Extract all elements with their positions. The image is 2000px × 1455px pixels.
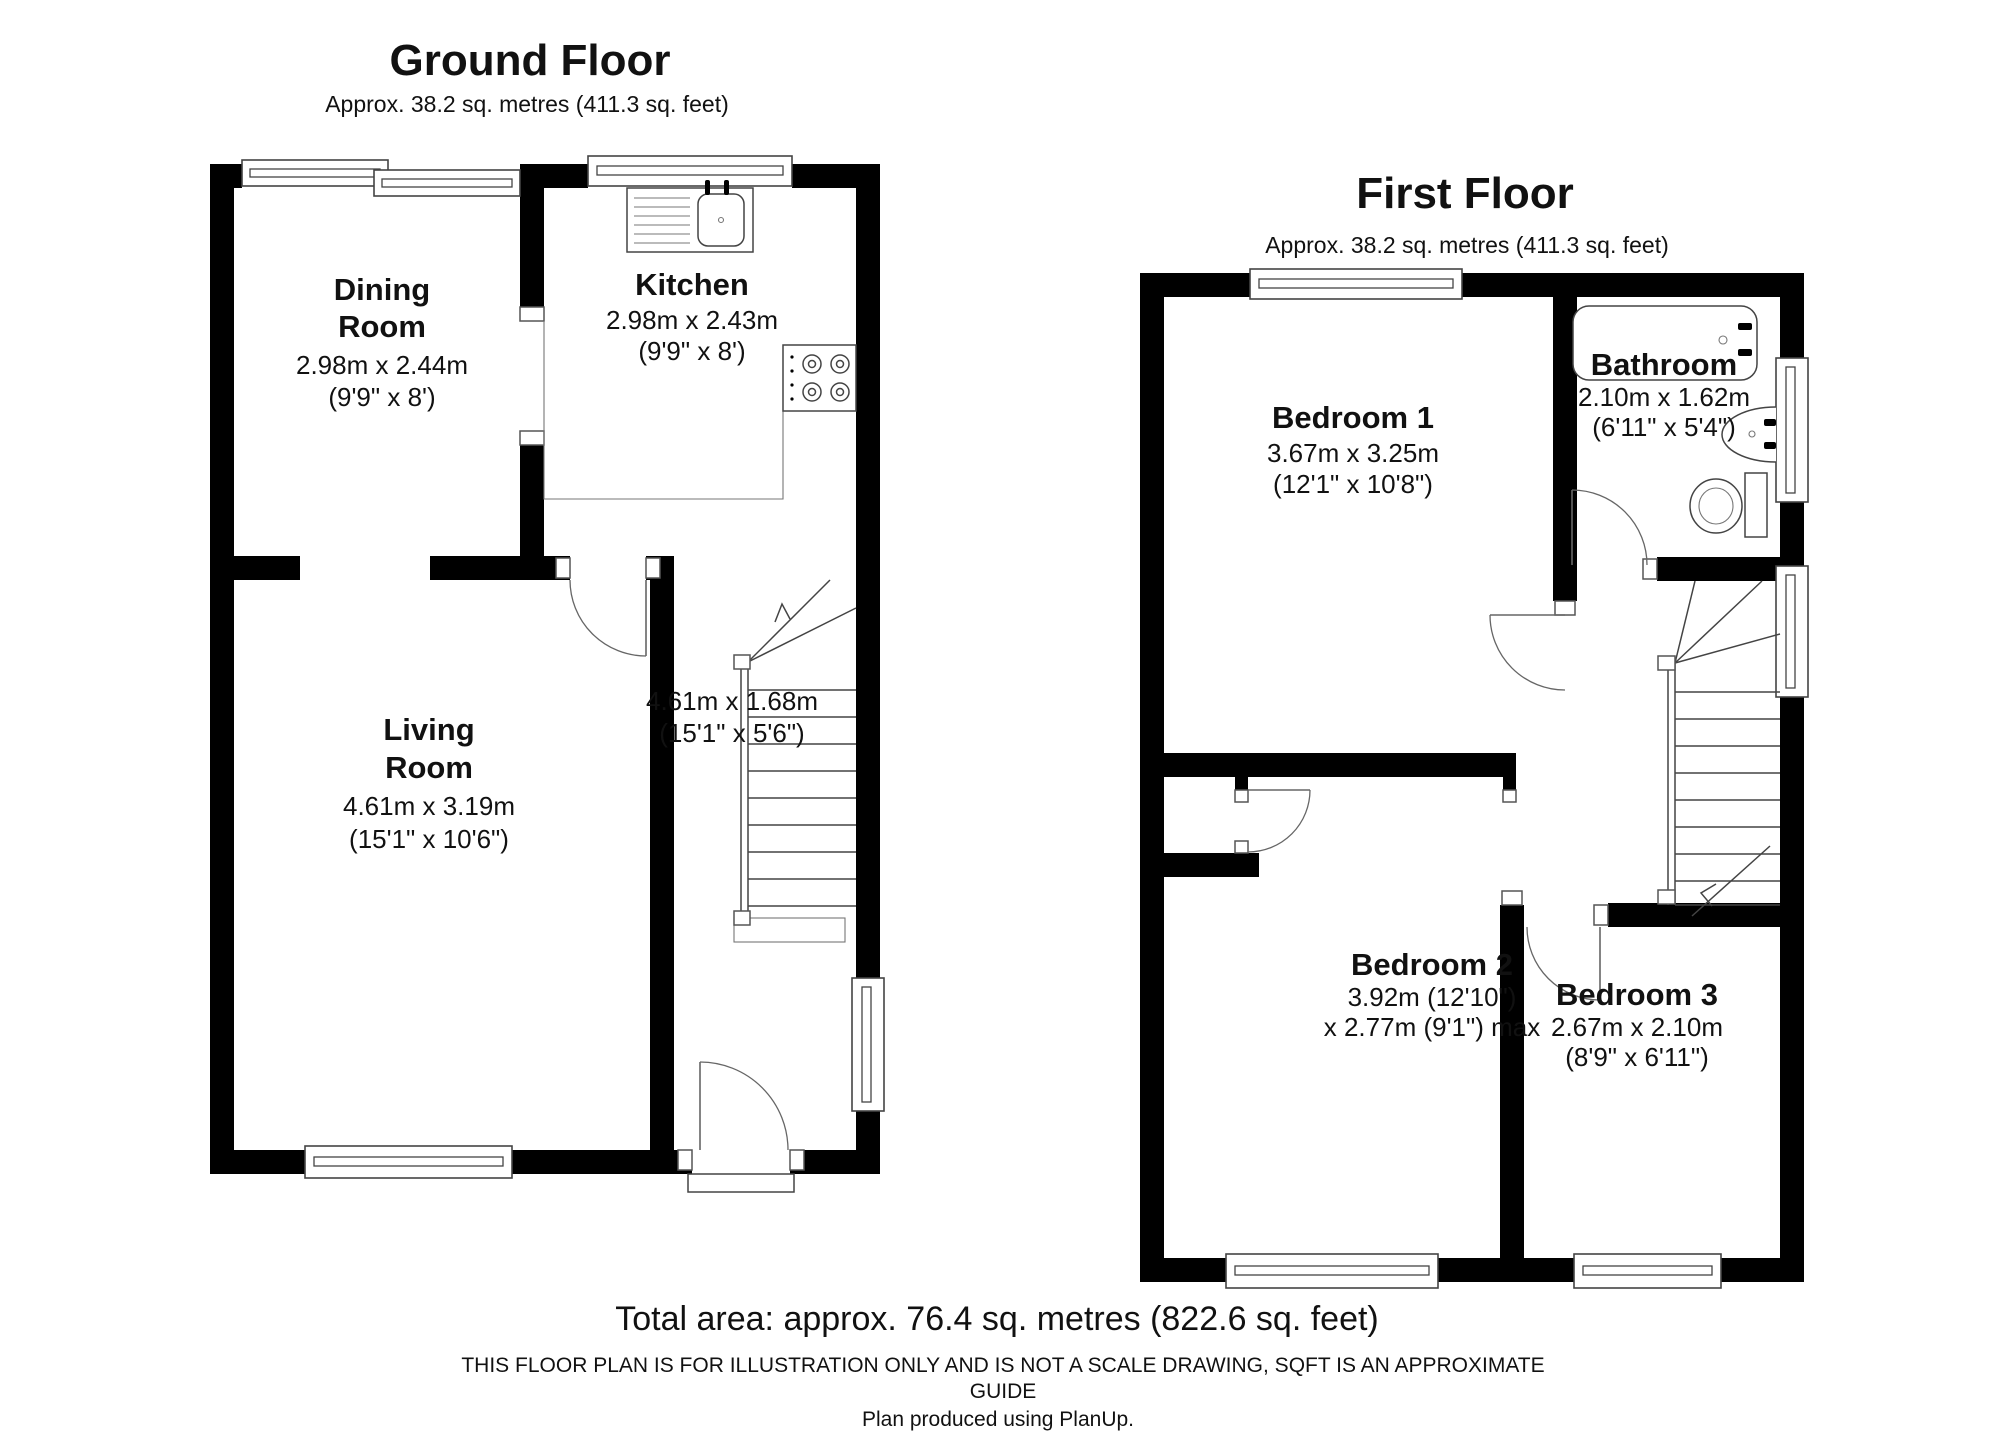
disclaimer-line1: THIS FLOOR PLAN IS FOR ILLUSTRATION ONLY… [461,1354,1544,1377]
svg-text:2.98m x 2.44m: 2.98m x 2.44m [296,350,468,380]
bedroom1-door [1490,615,1565,690]
svg-text:3.67m x 3.25m: 3.67m x 3.25m [1267,438,1439,468]
first-door-jambs [1235,559,1657,925]
planup-credit-text: Plan produced using PlanUp. [862,1408,1134,1431]
ground-floor-plan: Ground Floor Approx. 38.2 sq. metres (41… [210,36,884,1192]
svg-text:(9'9" x 8'): (9'9" x 8') [638,336,745,366]
bedroom3-window [1574,1254,1721,1288]
svg-text:(15'1" x 5'6"): (15'1" x 5'6") [659,718,804,748]
bedroom3-label: Bedroom 3 2.67m x 2.10m (8'9" x 6'11") [1551,977,1723,1072]
bathroom-window [1776,358,1808,502]
svg-text:(8'9" x 6'11"): (8'9" x 6'11") [1565,1042,1709,1072]
bathroom-label: Bathroom 2.10m x 1.62m (6'11" x 5'4") [1578,347,1750,442]
floorplan-drawing: Ground Floor Approx. 38.2 sq. metres (41… [0,0,2000,1455]
floorplan-page: Ground Floor Approx. 38.2 sq. metres (41… [0,0,2000,1455]
svg-text:(12'1" x 10'8"): (12'1" x 10'8") [1273,469,1433,499]
first-floor-plan: First Floor Approx. 38.2 sq. metres (411… [1140,169,1808,1288]
kitchen-window [588,156,792,186]
bedroom1-window [1250,269,1462,299]
landing-window [1776,566,1808,697]
svg-text:(15'1" x 10'6"): (15'1" x 10'6") [349,824,509,854]
svg-text:Room: Room [385,750,473,785]
ground-staircase [734,580,856,942]
stairs-up-arrow [775,604,790,622]
kitchen-label: Kitchen 2.98m x 2.43m (9'9" x 8') [606,267,778,366]
svg-text:(6'11" x 5'4"): (6'11" x 5'4") [1592,412,1736,442]
first-doors [1248,490,1647,1000]
living-room-label: Living Room 4.61m x 3.19m (15'1" x 10'6"… [343,712,515,854]
svg-text:Living: Living [383,712,474,747]
bedroom2-label: Bedroom 2 3.92m (12'10") x 2.77m (9'1") … [1324,947,1540,1042]
first-floor-title: First Floor [1356,169,1574,218]
bedroom1-label: Bedroom 1 3.67m x 3.25m (12'1" x 10'8") [1267,400,1439,499]
bedroom2-closet-door [1248,790,1310,852]
total-area-text: Total area: approx. 76.4 sq. metres (822… [615,1300,1379,1338]
ground-floor-subtitle: Approx. 38.2 sq. metres (411.3 sq. feet) [325,91,729,117]
disclaimer-line2: GUIDE [970,1380,1037,1403]
dining-window-right [374,170,520,196]
svg-text:Bedroom 1: Bedroom 1 [1272,400,1434,435]
svg-text:Bedroom 2: Bedroom 2 [1351,947,1513,982]
sink-counter-icon [627,180,753,252]
first-floor-subtitle: Approx. 38.2 sq. metres (411.3 sq. feet) [1265,232,1669,258]
svg-text:2.67m x 2.10m: 2.67m x 2.10m [1551,1012,1723,1042]
dining-room-label: Dining Room 2.98m x 2.44m (9'9" x 8') [296,272,468,412]
ground-stair-winders [748,580,856,662]
svg-text:x 2.77m (9'1") max: x 2.77m (9'1") max [1324,1012,1540,1042]
toilet-icon [1690,473,1767,537]
svg-text:4.61m x 1.68m: 4.61m x 1.68m [646,686,818,716]
first-staircase [1658,581,1780,916]
ground-doors [570,580,794,1192]
svg-text:Bathroom: Bathroom [1591,347,1737,382]
living-room-door [570,580,646,656]
first-stair-treads [1675,692,1780,905]
ground-walls [210,164,880,1174]
svg-text:Bedroom 3: Bedroom 3 [1556,977,1718,1012]
svg-text:(9'9" x 8'): (9'9" x 8') [328,382,435,412]
svg-text:2.10m x 1.62m: 2.10m x 1.62m [1578,382,1750,412]
bedroom2-window [1226,1254,1438,1288]
living-room-window [305,1146,512,1178]
hall-side-window [852,978,884,1111]
bathroom-door [1572,490,1647,565]
hob-icon [783,345,856,411]
footer: Total area: approx. 76.4 sq. metres (822… [461,1300,1544,1431]
svg-text:Kitchen: Kitchen [635,267,749,302]
dining-window-left [242,160,388,186]
svg-text:4.61m x 3.19m: 4.61m x 3.19m [343,791,515,821]
svg-text:3.92m (12'10"): 3.92m (12'10") [1348,982,1517,1012]
first-stair-winders [1675,581,1780,663]
svg-text:Dining: Dining [334,272,430,307]
svg-text:2.98m x 2.43m: 2.98m x 2.43m [606,305,778,335]
ground-floor-title: Ground Floor [389,36,670,85]
svg-text:Room: Room [338,309,426,344]
front-door [688,1062,794,1192]
front-door-threshold [688,1174,794,1192]
